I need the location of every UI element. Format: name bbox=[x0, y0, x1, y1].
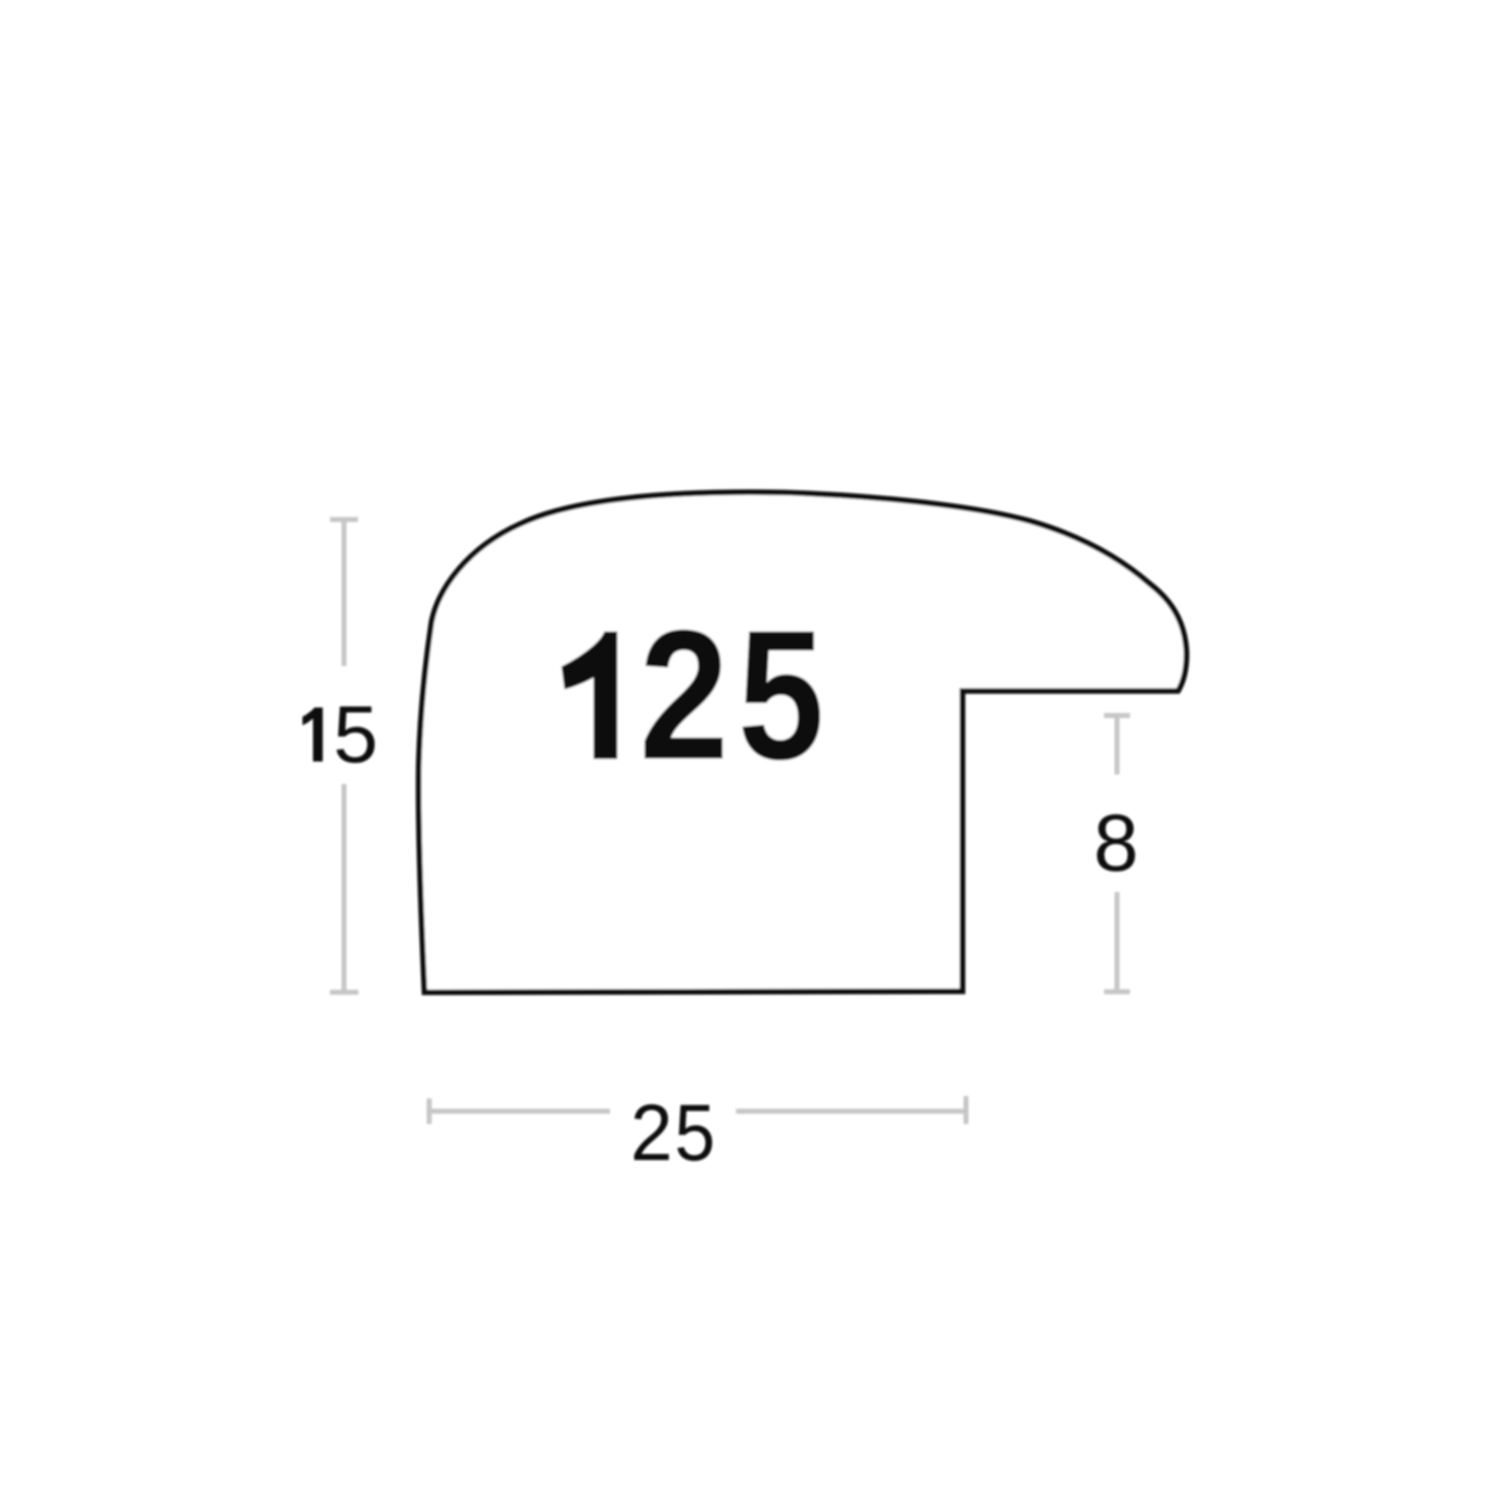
svg-text:5: 5 bbox=[333, 690, 378, 780]
svg-text:8: 8 bbox=[1093, 798, 1138, 888]
svg-text:5: 5 bbox=[675, 1089, 716, 1178]
svg-text:5: 5 bbox=[738, 592, 825, 798]
svg-text:2: 2 bbox=[630, 1087, 672, 1177]
svg-text:2: 2 bbox=[639, 591, 729, 797]
